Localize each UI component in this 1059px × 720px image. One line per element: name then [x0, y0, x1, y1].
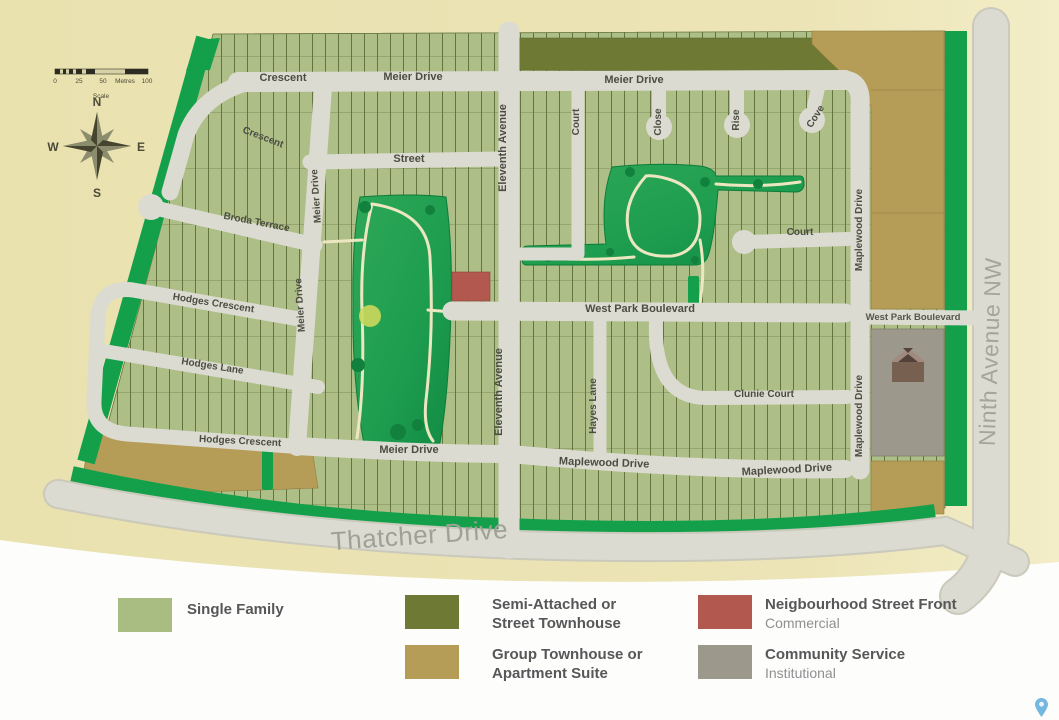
community-service-block: [871, 329, 944, 456]
compass-south: S: [93, 186, 101, 200]
street-label-eleventh-upper: Eleventh Avenue: [497, 104, 509, 192]
legend-label-group-townhouse-line2: Apartment Suite: [492, 664, 643, 683]
land-use-map-page: Crescent Meier Drive Meier Drive Crescen…: [0, 0, 1059, 720]
street-label-west-park-right: West Park Boulevard: [866, 312, 961, 323]
street-label-crescent-top: Crescent: [259, 72, 306, 84]
street-label-meier-top: Meier Drive: [383, 71, 442, 83]
street-label-close: Close: [653, 108, 664, 136]
scale-tick-25: 25: [75, 78, 83, 85]
street-label-court-top: Court: [571, 108, 582, 135]
street-label-west-park: West Park Boulevard: [585, 303, 695, 315]
legend-swatch-commercial: [698, 595, 752, 629]
legend-label-commercial: Neigbourhood Street Front: [765, 595, 957, 614]
legend-sublabel-community-service: Institutional: [765, 664, 905, 682]
compass-north: N: [93, 95, 102, 109]
compass-west: W: [47, 140, 59, 154]
street-label-meier-bottom: Meier Drive: [379, 444, 438, 456]
legend-label-group-townhouse-line1: Group Townhouse or: [492, 645, 643, 664]
legend-sublabel-commercial: Commercial: [765, 614, 957, 632]
street-label-court-right: Court: [787, 227, 814, 238]
commercial-block: [452, 272, 490, 301]
legend-label-semi-attached-line1: Semi-Attached or: [492, 595, 621, 614]
street-label-maplewood-vertical-upper: Maplewood Drive: [854, 188, 865, 271]
street-label-hayes-lane: Hayes Lane: [588, 378, 599, 434]
legend-swatch-community-service: [698, 645, 752, 679]
legend-label-community-service: Community Service: [765, 645, 905, 664]
legend-swatch-semi-attached: [405, 595, 459, 629]
park-meadow: [359, 305, 381, 327]
scale-tick-100: 100: [142, 78, 153, 85]
scale-tick-50: 50: [99, 78, 107, 85]
street-label-eleventh-lower: Eleventh Avenue: [493, 348, 505, 436]
legend-swatch-group-townhouse: [405, 645, 459, 679]
street-label-rise: Rise: [731, 109, 742, 131]
street-label-clunie-court: Clunie Court: [734, 389, 795, 400]
street-label-maplewood-vertical-lower: Maplewood Drive: [854, 374, 865, 457]
street-label-meier-top-right: Meier Drive: [604, 74, 663, 86]
semi-attached-block: [513, 38, 858, 72]
legend-swatch-single-family: [118, 598, 172, 632]
legend-label-single-family: Single Family: [187, 600, 284, 619]
scale-unit: Metres: [115, 78, 136, 85]
street-label-street: Street: [393, 153, 425, 165]
compass-east: E: [137, 140, 145, 154]
legend-label-semi-attached-line2: Street Townhouse: [492, 614, 621, 633]
scale-tick-0: 0: [53, 78, 57, 85]
